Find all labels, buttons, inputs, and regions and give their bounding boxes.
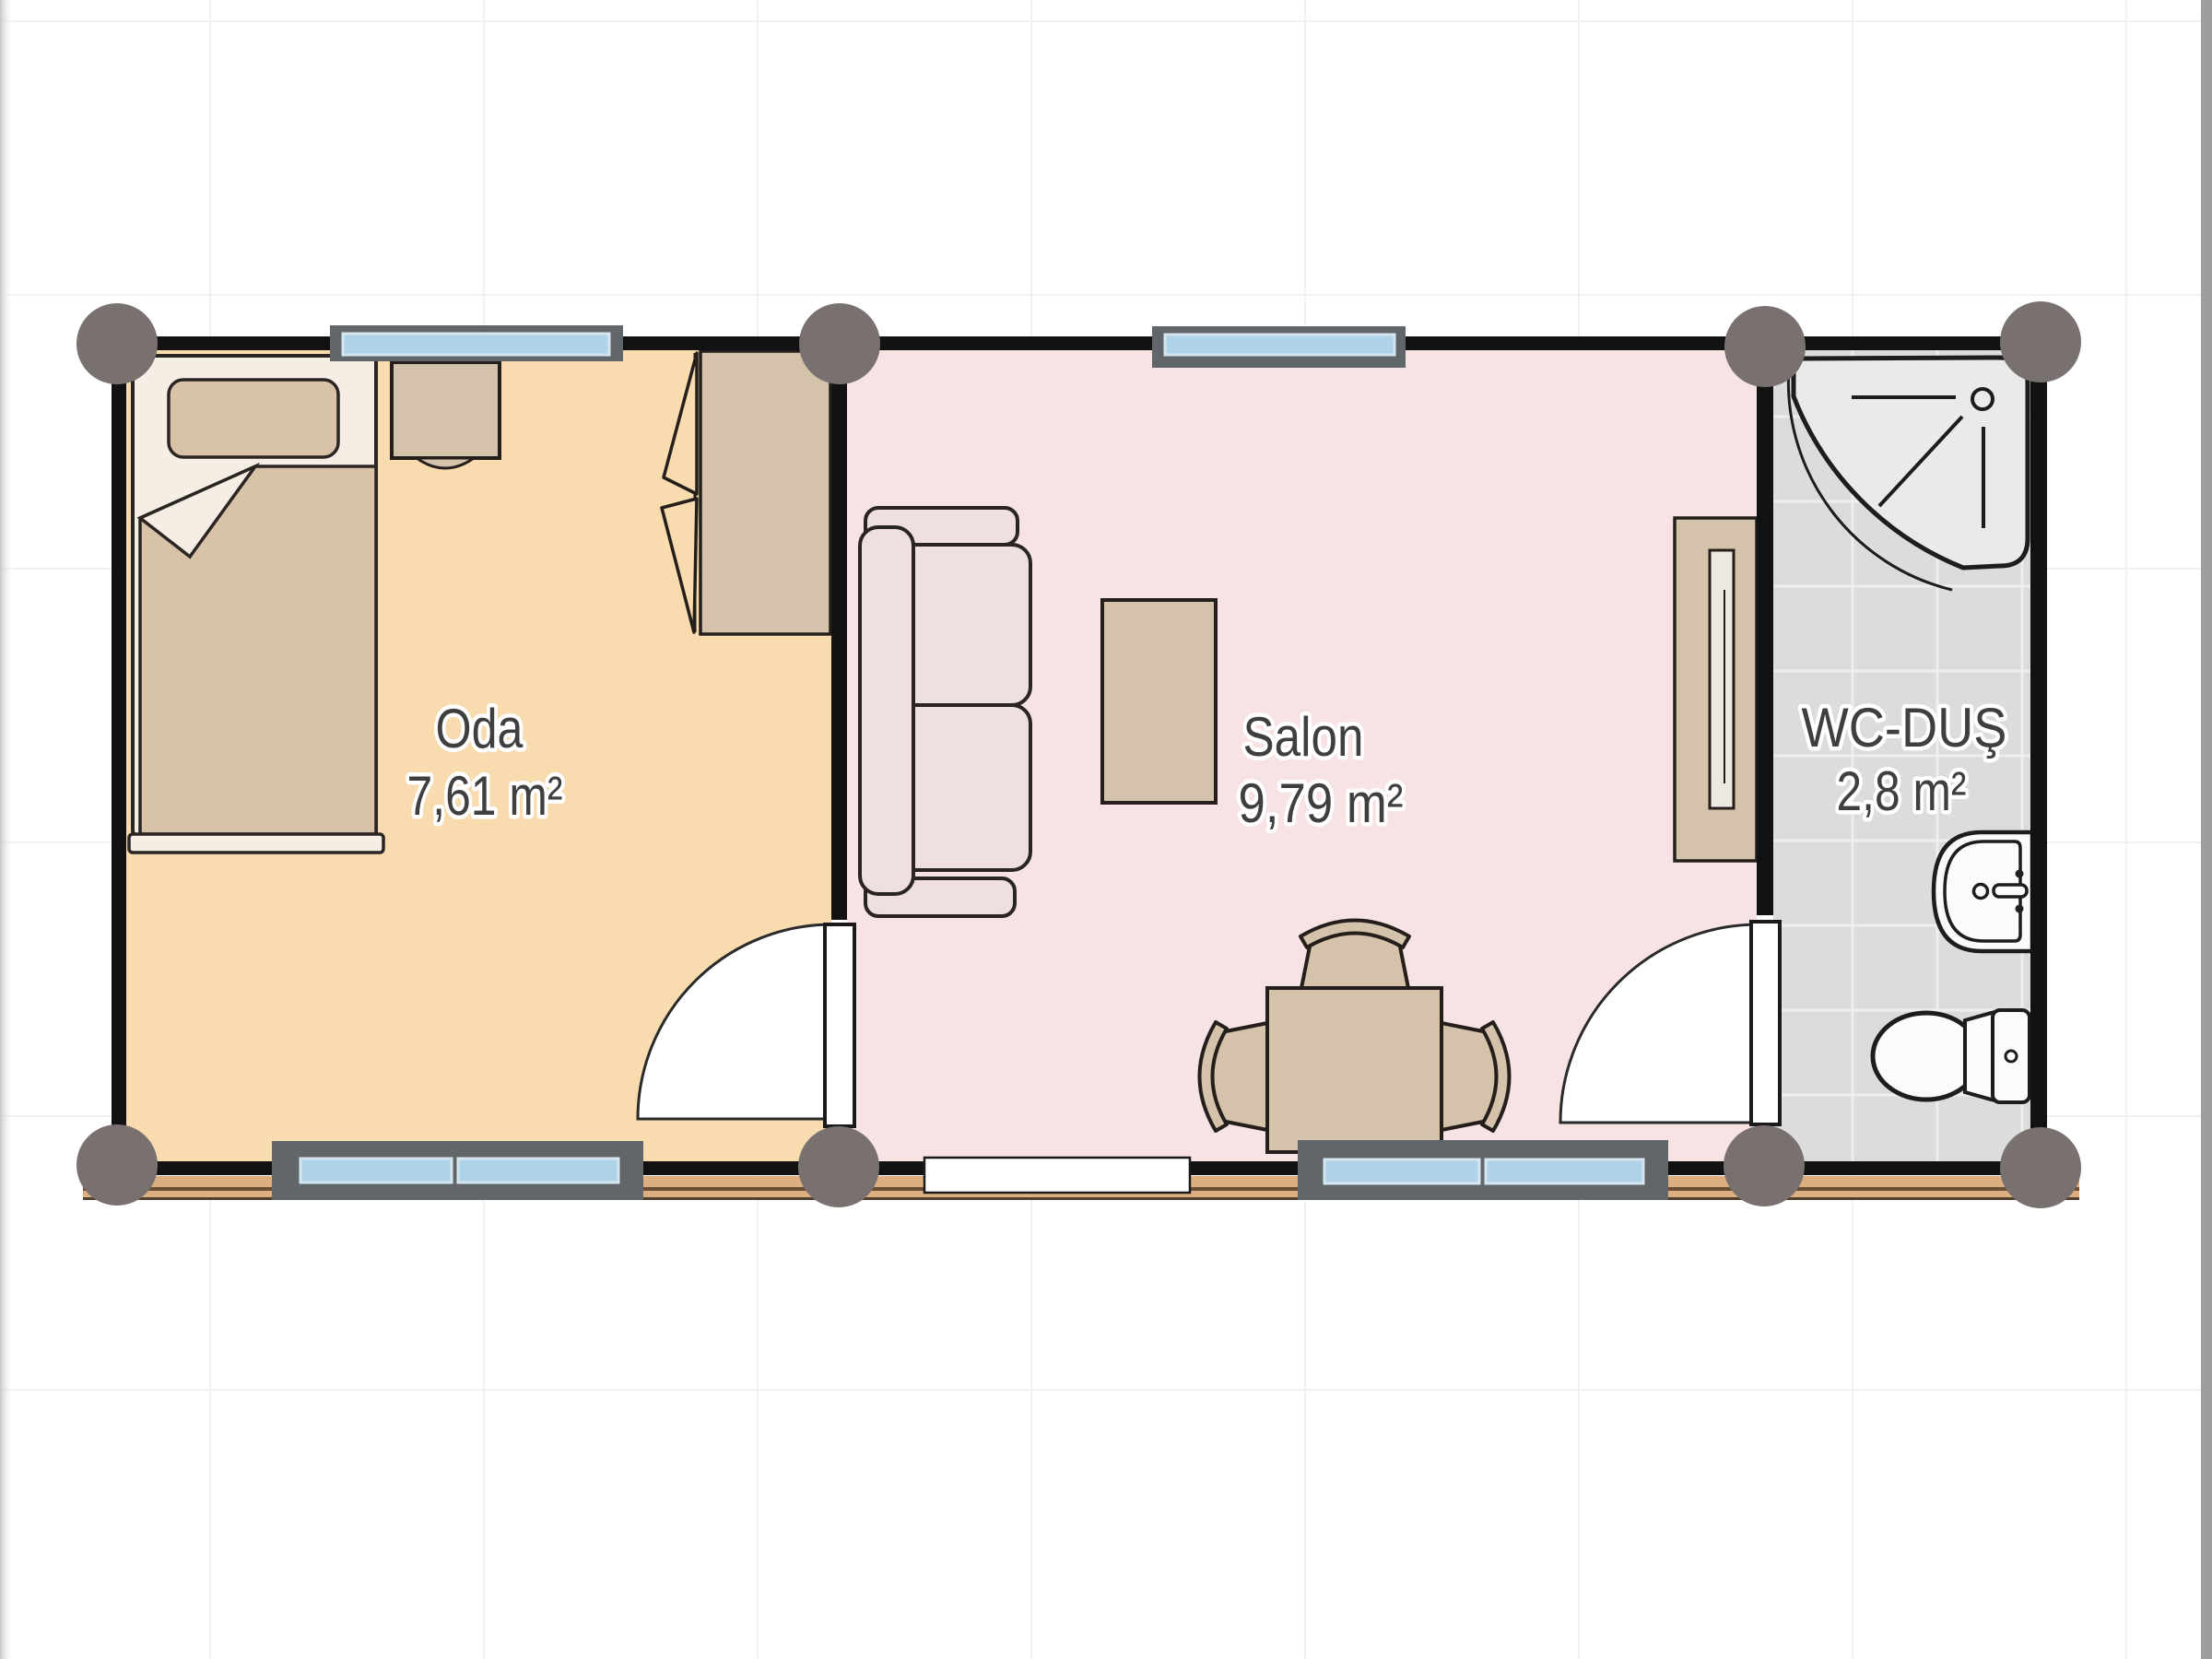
- svg-text:2,8 m²: 2,8 m²: [1837, 760, 1967, 822]
- svg-text:Salon: Salon: [1243, 706, 1364, 768]
- svg-text:7,61 m²: 7,61 m²: [407, 765, 563, 827]
- svg-text:Oda: Oda: [436, 698, 524, 759]
- svg-text:WC-DUŞ: WC-DUŞ: [1802, 697, 2007, 759]
- svg-text:9,79 m²: 9,79 m²: [1239, 772, 1404, 834]
